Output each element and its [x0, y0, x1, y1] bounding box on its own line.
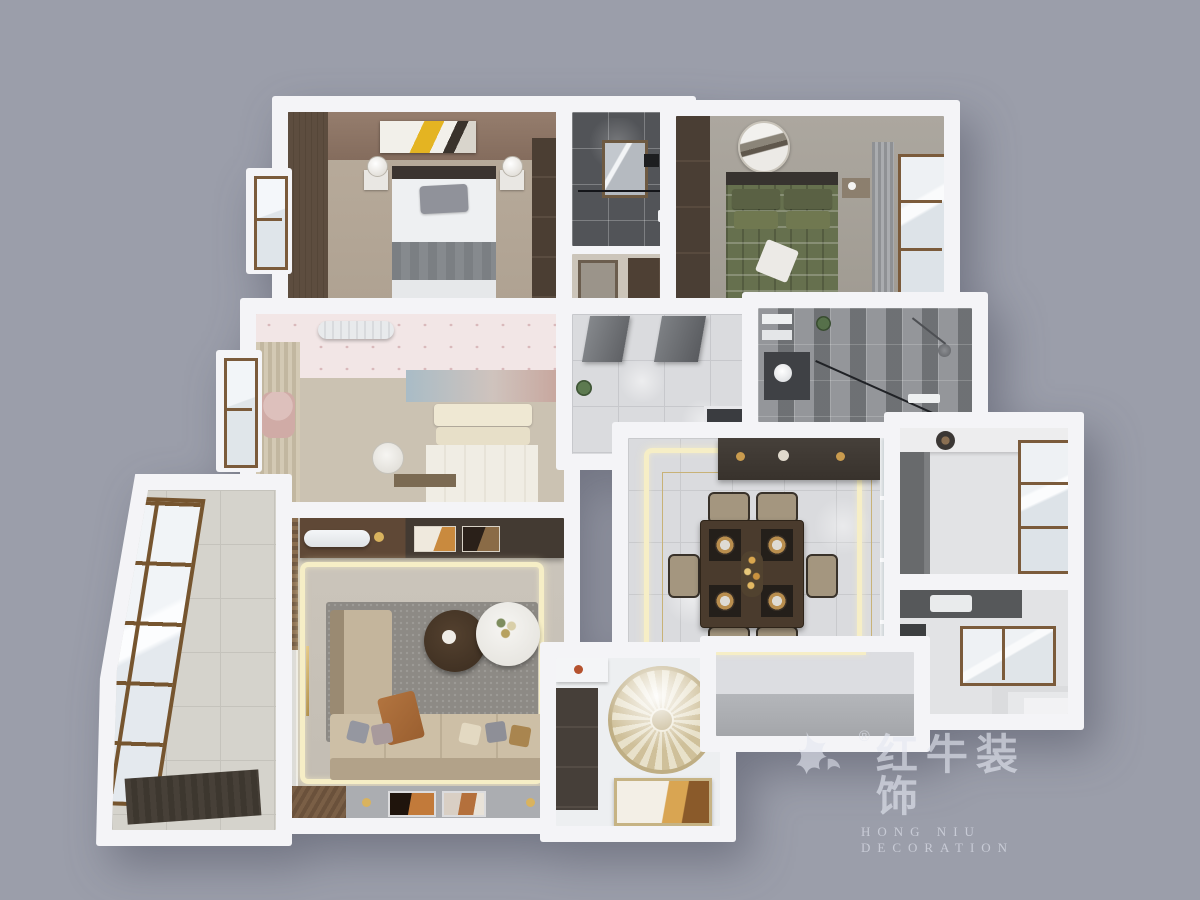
- entry-floor: [556, 658, 720, 826]
- desk-chair: [372, 442, 404, 474]
- kitchen-window-lower: [960, 626, 1056, 686]
- dining-table: [700, 520, 804, 628]
- console-art-1: [414, 526, 456, 552]
- console-red-decor: [574, 665, 583, 674]
- window-bay: [898, 154, 944, 302]
- balcony-block: [96, 474, 292, 846]
- shower-arm: [912, 317, 946, 344]
- kitchen-sink: [930, 595, 972, 612]
- bed-pillow-second: [436, 427, 530, 445]
- brand-name-chinese: 红牛装饰: [876, 734, 1075, 818]
- green-pillow-2: [784, 189, 832, 209]
- glazed-window-wall: [112, 496, 206, 807]
- vanity-sink: [774, 364, 792, 382]
- master-window-bay-block: [246, 168, 292, 274]
- shoe-cabinet: [556, 688, 598, 810]
- dining-chair-right: [806, 554, 838, 598]
- round-wall-art: [738, 121, 790, 173]
- bedroom-pink-floor: [256, 314, 564, 510]
- bed-headboard: [726, 172, 838, 185]
- plant: [816, 316, 831, 331]
- brand-name-english: HONG NIU DECORATION: [861, 824, 1075, 856]
- polka-dot-wallpaper: [256, 314, 564, 378]
- kitchen-window-upper-mullion-1: [1018, 482, 1068, 485]
- coffee-table-dish: [442, 630, 456, 644]
- bed-foot-blanket: [392, 242, 496, 280]
- rear-hall-floor: [716, 652, 914, 736]
- led-strip: [716, 652, 866, 655]
- nightstand: [842, 178, 870, 198]
- render-canvas: ® 红牛装饰 HONG NIU DECORATION: [0, 0, 1200, 900]
- bedroom-green-block: [660, 100, 960, 324]
- bathroom-gray-floor: [758, 308, 972, 422]
- console-art-2: [462, 526, 500, 552]
- table-lamp-left: [367, 156, 388, 177]
- pillow-mauve: [370, 722, 393, 745]
- wall-shelf-2: [762, 330, 792, 340]
- registered-mark: ®: [859, 728, 870, 745]
- pink-window-mullion: [224, 408, 252, 411]
- watermark: ® 红牛装饰 HONG NIU DECORATION: [795, 726, 1075, 856]
- shower-head: [938, 344, 951, 357]
- pillow-cream: [458, 722, 482, 746]
- window-mullion-2: [898, 248, 942, 251]
- bull-swoosh-logo-icon: [795, 726, 853, 784]
- shower-screen: [578, 190, 672, 192]
- gray-curtain: [872, 142, 894, 296]
- gold-artwork: [614, 778, 712, 826]
- pillow-gray-2: [485, 721, 508, 744]
- green-pillow-1: [732, 189, 780, 209]
- master-window-mullion: [254, 218, 282, 221]
- living-room-floor: [264, 518, 564, 818]
- green-pillow-3: [734, 211, 778, 229]
- door-leaf-2: [654, 316, 706, 362]
- kitchen-window-upper-mullion-2: [1018, 526, 1068, 529]
- air-conditioner: [318, 321, 394, 339]
- wardrobe: [676, 116, 710, 308]
- flower-centerpiece: [741, 551, 763, 597]
- wood-slat-panel: [284, 786, 346, 818]
- sideboard-decor-3: [836, 452, 845, 461]
- bed-headboard: [392, 166, 496, 179]
- nightstand-cup: [848, 182, 856, 190]
- black-fixture: [644, 154, 659, 167]
- wardrobe-left: [288, 112, 328, 302]
- table-lamp-right: [502, 156, 523, 177]
- dark-floor-mat: [125, 769, 262, 824]
- kitchen-window-upper: [1018, 440, 1068, 574]
- kitchen-divider-wall: [900, 574, 1068, 590]
- abstract-artwork: [380, 121, 476, 153]
- sideboard-decor-2: [778, 450, 789, 461]
- door-leaf-1: [582, 316, 630, 362]
- cooking-pot: [936, 431, 955, 450]
- plate-3: [715, 591, 735, 611]
- master-window: [254, 176, 288, 270]
- wall-shelf-1: [762, 314, 792, 324]
- kitchen-left-counter: [900, 452, 930, 574]
- plate-4: [767, 591, 787, 611]
- gold-ornament-1: [362, 798, 371, 807]
- kitchen-window-lower-mullion: [1002, 626, 1005, 680]
- bed-pillow: [419, 184, 468, 214]
- wall-art-2: [442, 791, 486, 817]
- towel: [908, 394, 940, 403]
- pink-cushions: [261, 392, 295, 438]
- ceiling-light-glow-1: [614, 360, 670, 402]
- master-bedroom-block: [272, 96, 586, 318]
- bed-pillow-top: [434, 404, 532, 426]
- pink-window-bay-block: [216, 350, 262, 472]
- living-air-conditioner: [304, 530, 370, 547]
- wood-desk: [394, 474, 456, 487]
- master-bedroom-floor: [288, 112, 570, 302]
- pink-bedroom-window: [224, 358, 258, 468]
- wall-art-1: [388, 791, 436, 817]
- seascape-mural-wall: [406, 370, 564, 402]
- tv-feature-wall: [284, 786, 564, 818]
- potted-plant: [576, 380, 592, 396]
- step-3: [1024, 698, 1068, 714]
- dining-chair-left: [668, 554, 700, 598]
- window-mullion-1: [898, 200, 942, 203]
- sofa-backrest: [330, 758, 556, 780]
- gold-ornament-2: [526, 798, 535, 807]
- console-decor: [374, 532, 384, 542]
- table-flowers: [492, 614, 522, 644]
- pillow-brown: [508, 724, 531, 747]
- plate-2: [767, 535, 787, 555]
- living-room-block: [248, 502, 580, 834]
- balcony-floor: [112, 490, 276, 830]
- sideboard-decor-1: [736, 452, 745, 461]
- bedroom-green-floor: [676, 116, 944, 308]
- plate-1: [715, 535, 735, 555]
- green-pillow-4: [786, 211, 830, 229]
